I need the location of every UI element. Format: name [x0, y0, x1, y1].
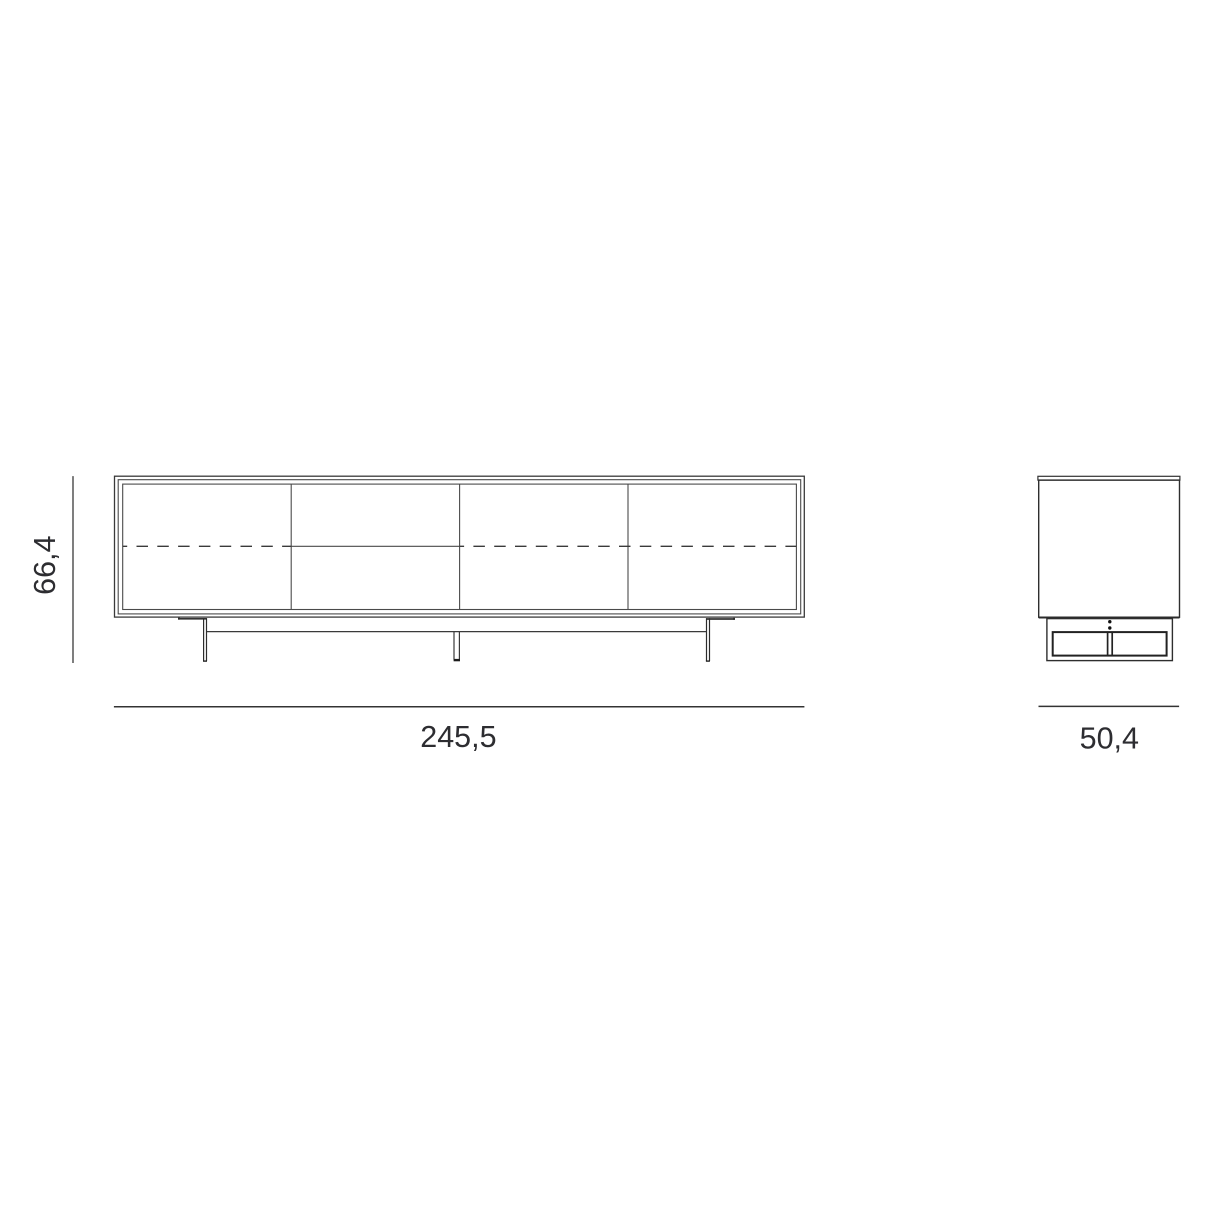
svg-text:50,4: 50,4	[1080, 721, 1139, 755]
svg-text:66,4: 66,4	[28, 535, 62, 594]
svg-text:245,5: 245,5	[420, 720, 496, 754]
